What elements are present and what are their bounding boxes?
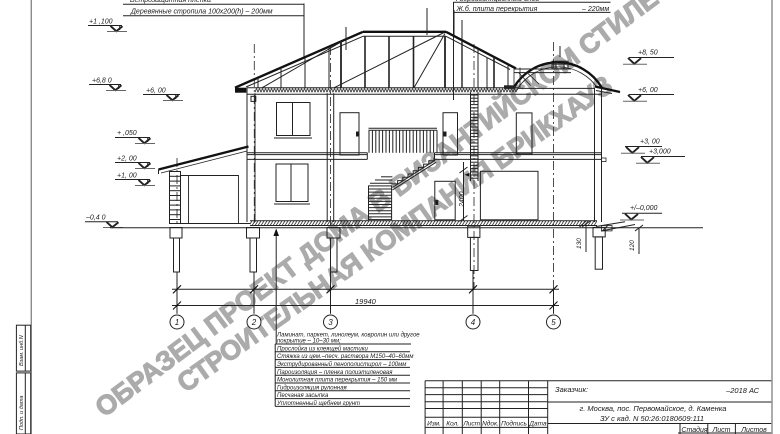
svg-text:19940: 19940 [355, 297, 377, 306]
svg-text:Ветрозащитная пленка: Ветрозащитная пленка [130, 0, 211, 4]
svg-text:Подпись: Подпись [501, 420, 527, 428]
svg-text:–0,4 0: –0,4 0 [85, 215, 106, 222]
svg-text:+3,000: +3,000 [649, 149, 671, 156]
svg-text:Подп. и дата: Подп. и дата [19, 396, 25, 430]
svg-text:4: 4 [471, 318, 476, 327]
svg-text:+1 ,100: +1 ,100 [89, 19, 113, 26]
svg-text:Лист: Лист [711, 427, 730, 434]
svg-text:Кол.: Кол. [446, 421, 459, 428]
svg-text:2: 2 [251, 318, 257, 327]
svg-text:+1, 00: +1, 00 [117, 173, 137, 180]
svg-text:Гидроизоляционный слой: Гидроизоляционный слой [456, 0, 539, 3]
svg-text:Заказчик:: Заказчик: [555, 385, 588, 394]
svg-text:+ ,050: + ,050 [117, 130, 137, 137]
svg-text:130: 130 [576, 238, 583, 249]
svg-text:120: 120 [629, 240, 636, 251]
svg-text:Nдок.: Nдок. [482, 420, 499, 428]
svg-text:Стадия: Стадия [681, 426, 707, 434]
svg-text:ЗУ с кад. N 50:26:0180609:: ЗУ с кад. N 50:26:0180609:111 [600, 414, 704, 423]
svg-text:–2018 АС: –2018 АС [725, 386, 760, 395]
svg-text:1: 1 [175, 318, 179, 327]
svg-text:+/–0,000: +/–0,000 [630, 205, 658, 212]
svg-text:5: 5 [551, 318, 556, 327]
svg-text:Лист: Лист [462, 421, 480, 428]
svg-text:г. Москва, пос. Первомайско: г. Москва, пос. Первомайское, д. Каменка [580, 404, 727, 413]
svg-text:+6, 00: +6, 00 [146, 88, 166, 95]
svg-text:2400: 2400 [459, 191, 466, 208]
svg-text:– 220мм: – 220мм [581, 6, 609, 13]
svg-text:+2, 00: +2, 00 [117, 156, 137, 163]
svg-text:Взам. инб.N: Взам. инб.N [19, 335, 25, 366]
svg-text:Изм.: Изм. [427, 421, 441, 428]
svg-text:3: 3 [328, 318, 333, 327]
svg-text:+6, 00: +6, 00 [638, 87, 658, 94]
svg-text:Деревянные стропила 100х200(: Деревянные стропила 100х200(h) – 200мм [130, 9, 273, 16]
svg-text:Дата: Дата [528, 421, 547, 428]
svg-text:Ж.б. плита перекрытия: Ж.б. плита перекрытия [456, 5, 538, 13]
svg-text:+6,8 0: +6,8 0 [92, 78, 112, 85]
svg-text:Листов: Листов [740, 427, 767, 434]
svg-text:+3, 00: +3, 00 [640, 139, 660, 146]
svg-text:Ламинат, паркет, линолеум,: Ламинат, паркет, линолеум, ковролин или … [276, 333, 420, 339]
svg-text:+8, 50: +8, 50 [638, 50, 658, 57]
